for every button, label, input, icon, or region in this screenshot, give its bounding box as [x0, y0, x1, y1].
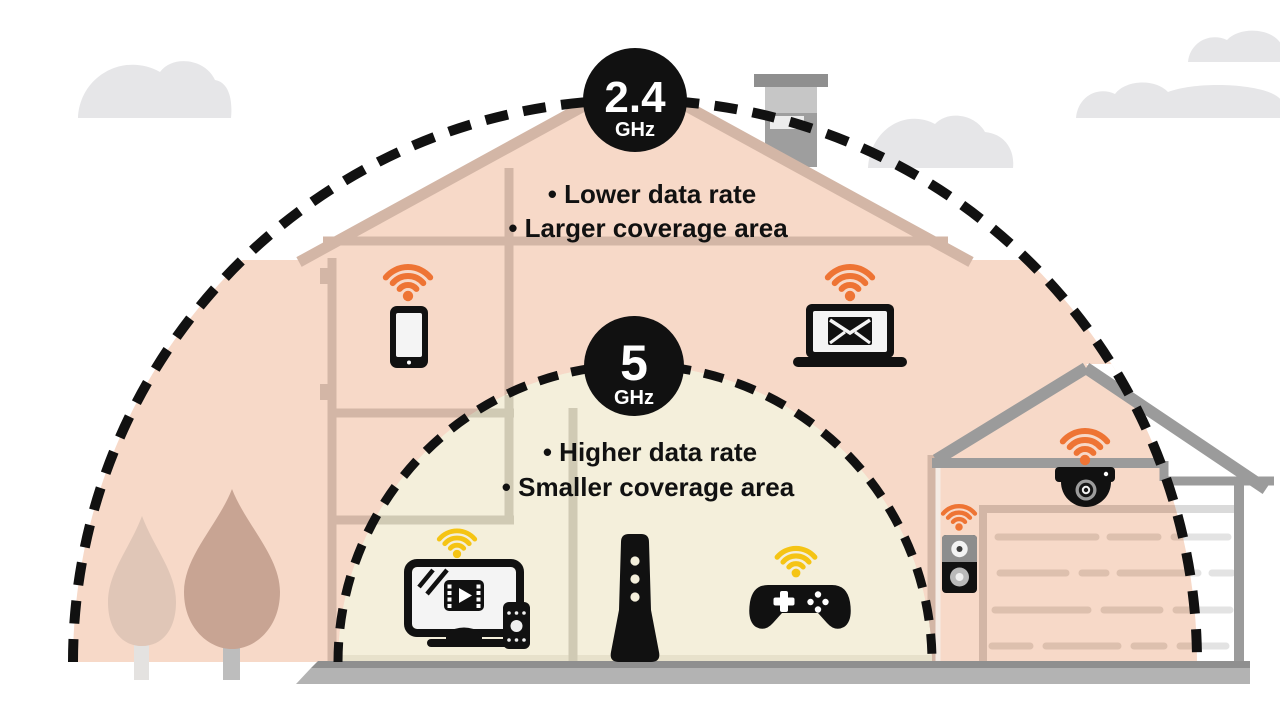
tree-trunk	[134, 642, 149, 680]
wifi-coverage-infographic: 2.4 GHz 5 GHz • Lower data rate • Larger…	[0, 0, 1280, 720]
bullet-5ghz-line1: • Higher data rate	[543, 437, 757, 467]
cloud-icon	[1076, 82, 1280, 118]
cloud-icon	[78, 61, 231, 118]
badge-5ghz-value: 5	[620, 335, 648, 391]
badge-24ghz: 2.4 GHz	[583, 48, 687, 152]
smart-tv-remote-icon	[408, 563, 530, 649]
bullet-24ghz-line1: • Lower data rate	[548, 179, 757, 209]
smartphone-icon	[390, 306, 428, 368]
bullet-24ghz-line2: • Larger coverage area	[508, 213, 788, 243]
cloud-icon	[868, 116, 1013, 168]
bullet-5ghz-line2: • Smaller coverage area	[502, 472, 795, 502]
speaker-icon	[942, 535, 977, 593]
cloud-icon	[1188, 31, 1280, 62]
remote-icon	[503, 602, 530, 649]
badge-5ghz: 5 GHz	[584, 316, 684, 416]
badge-5ghz-unit: GHz	[614, 387, 654, 409]
tree-trunk	[223, 644, 240, 680]
badge-24ghz-unit: GHz	[615, 119, 655, 141]
ground	[296, 661, 1250, 684]
laptop-email-icon	[793, 304, 907, 367]
badge-24ghz-value: 2.4	[604, 73, 666, 122]
